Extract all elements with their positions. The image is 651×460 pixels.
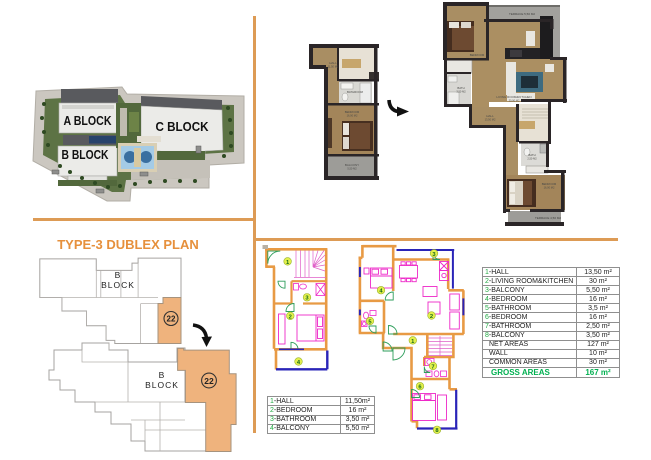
svg-text:2: 2: [430, 314, 433, 320]
svg-text:2: 2: [289, 314, 292, 320]
svg-text:7: 7: [431, 364, 434, 370]
